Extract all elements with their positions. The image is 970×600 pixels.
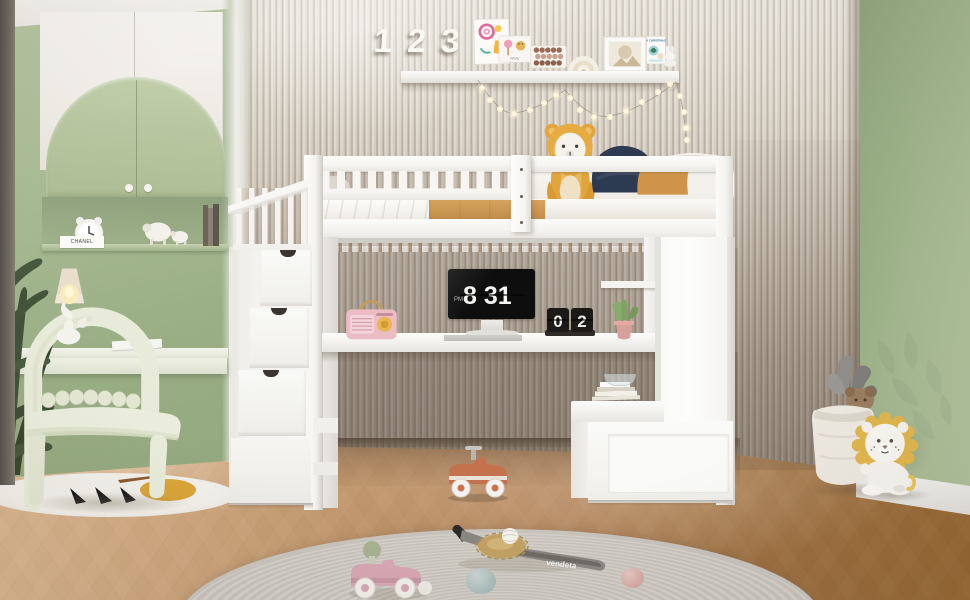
svg-text:0: 0 xyxy=(553,312,562,331)
svg-text:Wally: Wally xyxy=(510,55,520,60)
svg-text:2: 2 xyxy=(577,312,586,331)
